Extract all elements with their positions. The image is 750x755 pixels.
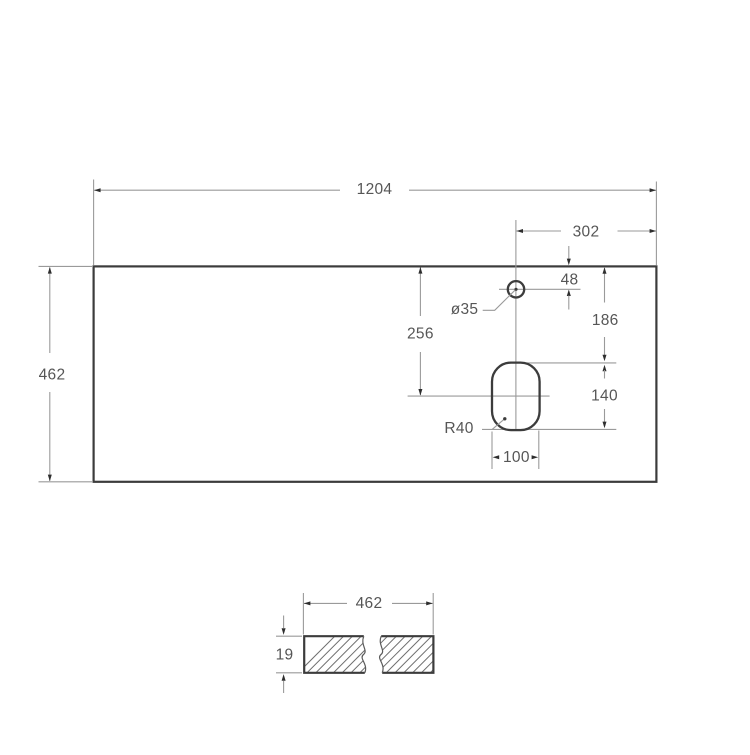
svg-text:1204: 1204 <box>357 181 393 198</box>
svg-text:100: 100 <box>503 449 530 466</box>
svg-text:462: 462 <box>39 366 66 383</box>
svg-text:462: 462 <box>356 595 383 612</box>
svg-text:302: 302 <box>573 223 600 240</box>
svg-text:48: 48 <box>561 272 579 289</box>
svg-text:256: 256 <box>407 325 434 342</box>
svg-text:19: 19 <box>276 647 294 664</box>
svg-text:186: 186 <box>592 312 619 329</box>
svg-text:ø35: ø35 <box>451 301 479 318</box>
svg-text:R40: R40 <box>444 420 473 437</box>
svg-text:140: 140 <box>591 388 618 405</box>
